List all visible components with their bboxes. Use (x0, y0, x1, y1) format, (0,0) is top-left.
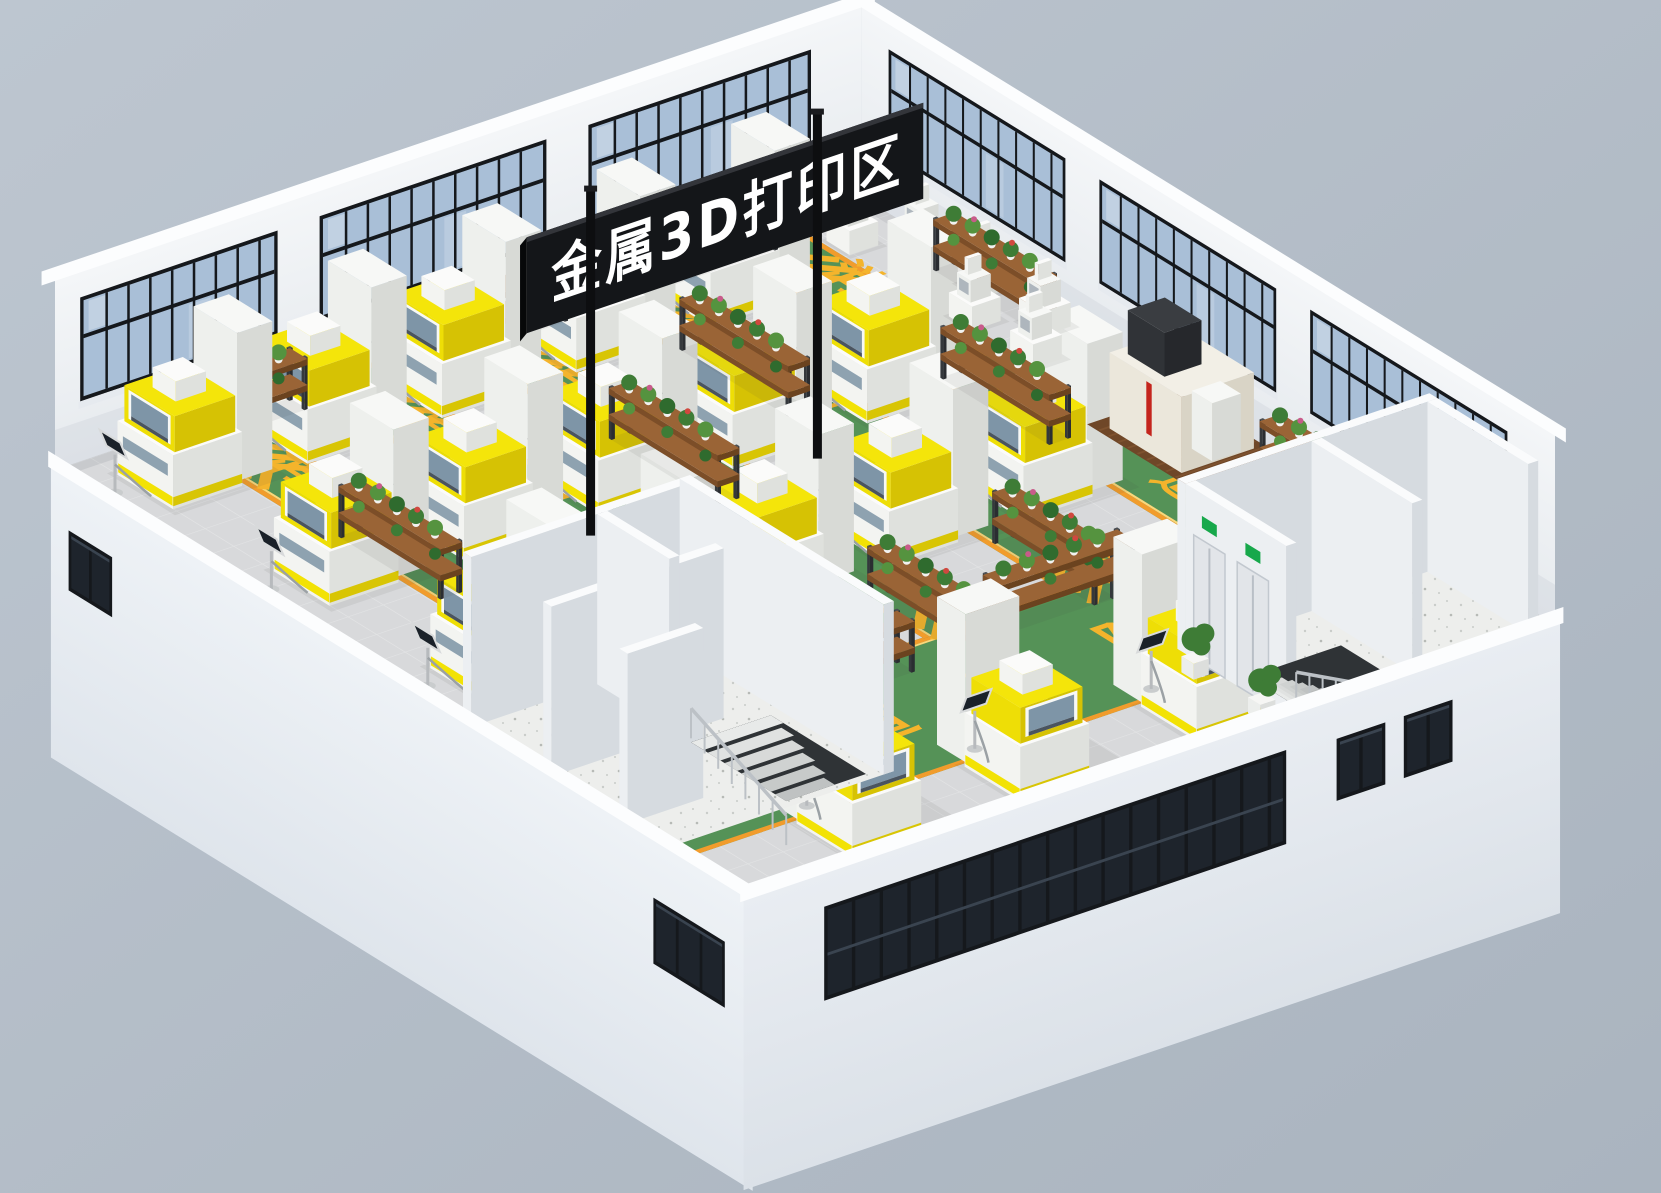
window-glass-highlight (328, 213, 346, 249)
window-mullion (1348, 337, 1350, 434)
plant (948, 234, 960, 246)
plant (920, 586, 932, 598)
plant (1031, 389, 1043, 401)
plant (623, 403, 635, 415)
plant (661, 426, 673, 438)
flower (978, 324, 984, 330)
plant (1044, 573, 1056, 585)
window-mullion (149, 277, 152, 374)
window-mullion (1033, 142, 1035, 239)
plant-foliage (1192, 638, 1210, 656)
plant (880, 534, 896, 550)
plant (993, 366, 1005, 378)
window-mullion (1331, 326, 1333, 423)
room-wall-right (1528, 461, 1538, 634)
window-mullion (127, 285, 130, 382)
flower (414, 507, 420, 513)
flower (1009, 240, 1015, 246)
plant (697, 422, 713, 438)
sign-pole-cap (811, 109, 824, 115)
flower (1030, 489, 1036, 495)
window-mullion (962, 99, 964, 196)
facade-window-mullion (700, 930, 703, 990)
flower (717, 296, 723, 302)
facade-window-mullion (1359, 734, 1362, 789)
flower (685, 408, 691, 414)
facade-window-mullion (1426, 711, 1429, 766)
printer-cabinet-left (1113, 537, 1142, 703)
plant (995, 561, 1011, 577)
room-wall-left (543, 602, 551, 777)
flower (1068, 513, 1074, 519)
flower (943, 568, 949, 574)
window-mullion (432, 181, 435, 278)
flower (905, 544, 911, 550)
plant (1042, 545, 1058, 561)
cnc-red-stripe (1146, 381, 1151, 436)
plant (427, 520, 443, 536)
sign-pole (813, 114, 822, 459)
plant (953, 314, 969, 330)
window-mullion (171, 270, 174, 367)
flower (1016, 348, 1022, 354)
plant (770, 361, 782, 373)
flower (1297, 418, 1303, 424)
plant (692, 285, 708, 301)
plant (273, 372, 285, 384)
room-wall-left (463, 552, 471, 727)
room-wall-left (1177, 479, 1185, 654)
room-wall-left (619, 649, 627, 824)
window-mullion (944, 88, 946, 185)
plant (730, 309, 746, 325)
plant (699, 450, 711, 462)
plant (271, 344, 287, 360)
plant (955, 342, 967, 354)
plant (1005, 479, 1021, 495)
window-mullion (1137, 207, 1139, 304)
window-mullion (980, 109, 982, 206)
plant (991, 338, 1007, 354)
room-wall-right (1412, 500, 1422, 674)
plant (1043, 502, 1059, 518)
window-glass-highlight (597, 122, 615, 158)
flower (376, 483, 382, 489)
window-mullion (1050, 153, 1052, 250)
sign-end-face (520, 237, 527, 341)
window-mullion (1244, 272, 1246, 369)
room-wall-right (884, 601, 894, 774)
plant (768, 333, 784, 349)
sign-pole-cap (584, 186, 597, 192)
window-mullion (454, 174, 457, 271)
flower (971, 216, 977, 222)
plant (621, 375, 637, 391)
plant (391, 524, 403, 536)
flower (1072, 535, 1078, 541)
flower (755, 319, 761, 325)
window-mullion (1120, 196, 1122, 293)
plant (1007, 507, 1019, 519)
small-arm-left (1035, 262, 1038, 280)
printer-cabinet-right (237, 321, 272, 481)
plant (694, 313, 706, 325)
window-mullion (997, 120, 999, 217)
plant (1089, 529, 1105, 545)
plant (946, 206, 962, 222)
plant (1045, 530, 1057, 542)
plant (389, 496, 405, 512)
window-mullion (410, 189, 413, 286)
window-mullion (1226, 262, 1228, 359)
printer-cabinet-left (937, 597, 966, 763)
plant (918, 558, 934, 574)
metal-3d-print-zone-overview: 消防通道消防通道消防通道消防通道消防通道通防消 金属3D打印区 (0, 0, 1661, 1193)
cnc-side-unit-right (1212, 394, 1241, 462)
small-arm-left (1026, 295, 1029, 313)
window-mullion (105, 292, 108, 389)
facade-window-mullion (89, 547, 92, 601)
plant (351, 473, 367, 489)
factory-3d-render: 消防通道消防通道消防通道消防通道消防通道通防消 金属3D打印区 (0, 0, 1661, 1193)
plant (353, 501, 365, 513)
window-mullion (1208, 251, 1210, 348)
plant-foliage (1259, 679, 1277, 697)
plant (986, 257, 998, 269)
small-arm-left (965, 257, 968, 275)
plant (1029, 361, 1045, 377)
plant (882, 562, 894, 574)
plant (984, 229, 1000, 245)
flower (647, 385, 653, 391)
plant (429, 548, 441, 560)
sign-pole (586, 191, 595, 536)
flower (1025, 551, 1031, 557)
window-mullion (1261, 283, 1263, 380)
window-glass-highlight (89, 294, 107, 330)
plant (659, 398, 675, 414)
window-glass-highlight (986, 153, 1004, 218)
facade-window-mullion (676, 915, 679, 975)
plant (1272, 407, 1288, 423)
plant (1091, 557, 1103, 569)
window-mullion (1015, 131, 1017, 228)
window-mullion (927, 77, 929, 174)
plant (732, 337, 744, 349)
window-mullion (679, 97, 682, 194)
window-mullion (723, 83, 726, 180)
window-mullion (701, 90, 704, 187)
